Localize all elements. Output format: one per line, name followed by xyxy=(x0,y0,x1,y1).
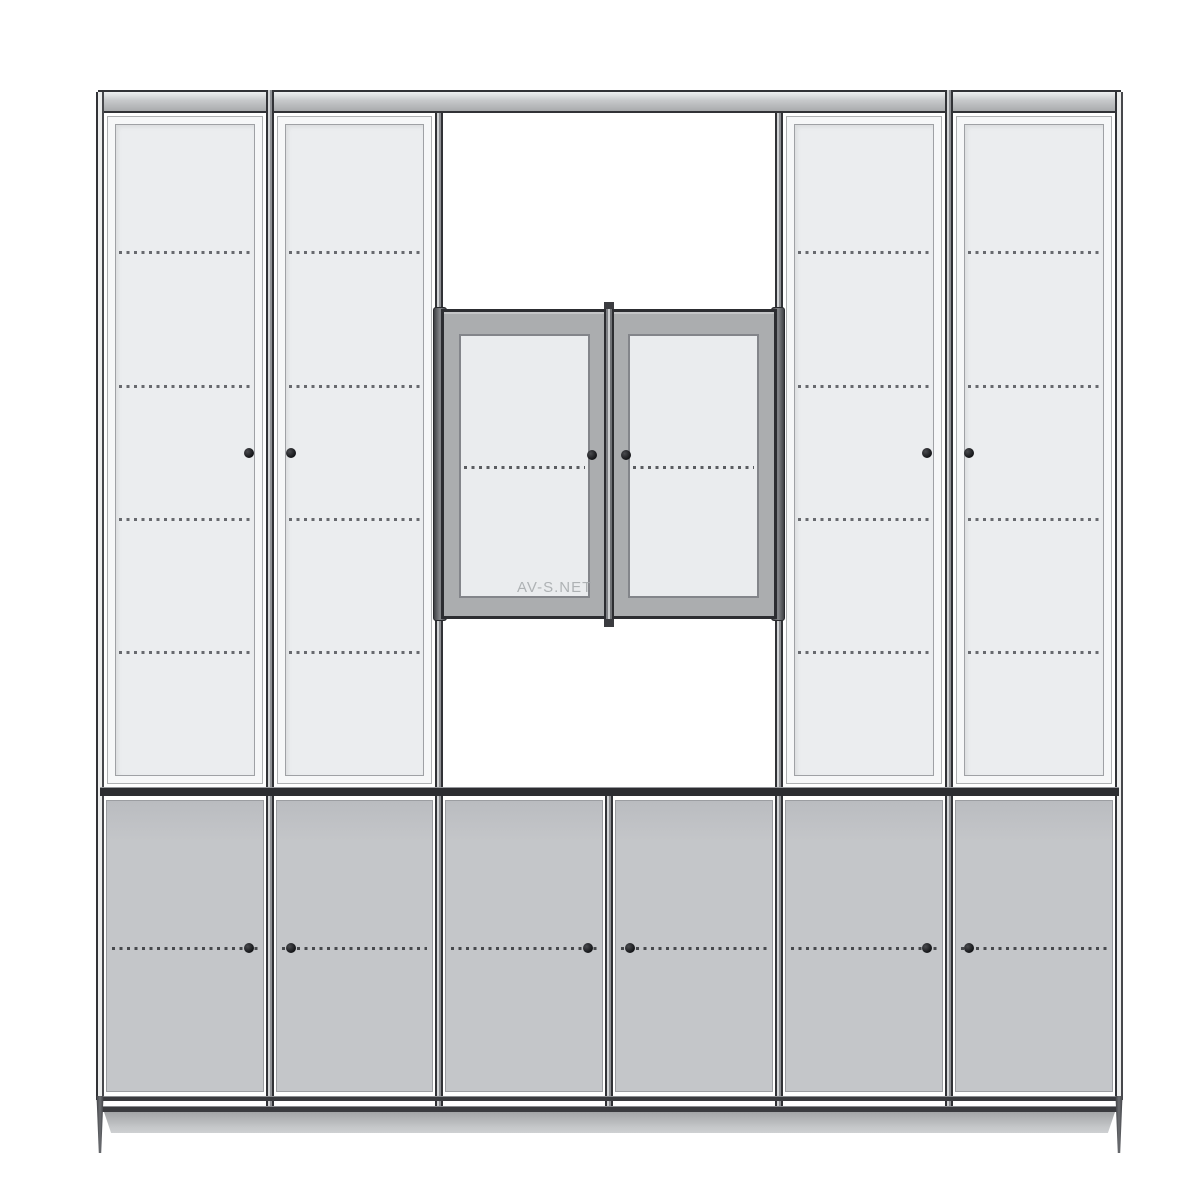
shelf-line xyxy=(798,251,930,254)
door-knob xyxy=(964,943,974,953)
foot xyxy=(1114,1096,1124,1153)
upper-door-panel xyxy=(964,124,1104,776)
bottom-rail xyxy=(98,1096,1121,1101)
upper-door-panel xyxy=(285,124,424,776)
door-knob xyxy=(922,448,932,458)
shelf-line xyxy=(968,518,1100,521)
display-center-stub xyxy=(604,302,614,309)
upper-door-panel xyxy=(794,124,934,776)
shelf-line xyxy=(633,466,754,469)
shelf-line xyxy=(968,385,1100,388)
door-knob xyxy=(244,943,254,953)
door-knob xyxy=(922,943,932,953)
door-knob xyxy=(587,450,597,460)
foot xyxy=(95,1096,105,1153)
shelf-line xyxy=(961,947,1107,950)
plinth xyxy=(104,1112,1115,1133)
shelf-line xyxy=(798,518,930,521)
bottom-door xyxy=(445,800,603,1092)
shelf-line xyxy=(119,251,251,254)
frame-post xyxy=(1115,92,1123,1100)
shelf-line xyxy=(791,947,937,950)
door-knob xyxy=(625,943,635,953)
door-knob xyxy=(964,448,974,458)
door-knob xyxy=(286,943,296,953)
bottom-door xyxy=(615,800,773,1092)
shelf-line xyxy=(451,947,597,950)
drawing-canvas: AV-S.NET xyxy=(0,0,1200,1200)
frame-post xyxy=(96,92,104,1100)
shelf-line xyxy=(968,251,1100,254)
shelf-line xyxy=(119,651,251,654)
shelf-line xyxy=(119,385,251,388)
shelf-line xyxy=(968,651,1100,654)
door-knob xyxy=(244,448,254,458)
shelf-line xyxy=(112,947,258,950)
shelf-line xyxy=(282,947,427,950)
display-center-stub xyxy=(604,619,614,627)
shelf-line xyxy=(289,385,420,388)
door-knob xyxy=(286,448,296,458)
shelf-line xyxy=(289,251,420,254)
door-knob xyxy=(621,450,631,460)
top-rail xyxy=(98,90,1121,113)
shelf-line xyxy=(798,385,930,388)
display-center-stile xyxy=(604,309,614,619)
shelf-line xyxy=(621,947,767,950)
shelf-line xyxy=(289,651,420,654)
bottom-door xyxy=(785,800,943,1092)
bottom-rail xyxy=(98,1106,1121,1112)
door-knob xyxy=(583,943,593,953)
bottom-door xyxy=(276,800,433,1092)
frame-post xyxy=(945,90,953,1112)
bottom-door xyxy=(955,800,1113,1092)
frame-post xyxy=(266,90,274,1112)
bottom-door xyxy=(106,800,264,1092)
shelf-line xyxy=(464,466,585,469)
shelf-line xyxy=(798,651,930,654)
frame-post xyxy=(605,788,613,1112)
upper-door-panel xyxy=(115,124,255,776)
mid-rail xyxy=(100,787,1119,796)
shelf-line xyxy=(289,518,420,521)
watermark: AV-S.NET xyxy=(517,579,592,596)
shelf-line xyxy=(119,518,251,521)
